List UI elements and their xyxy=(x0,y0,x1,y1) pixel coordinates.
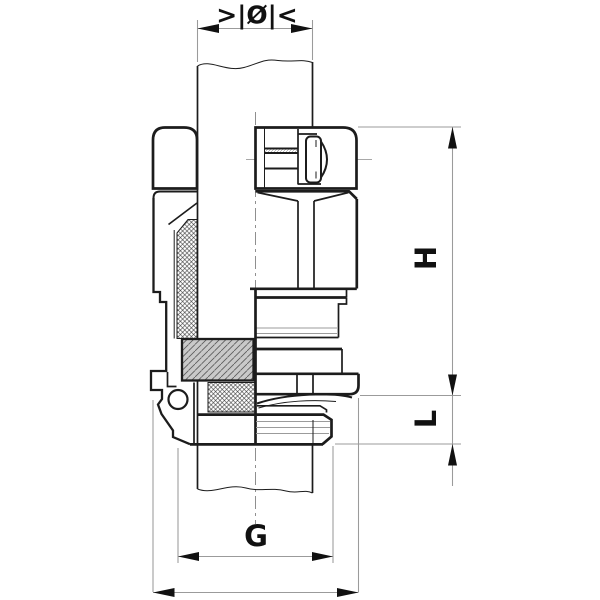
diameter-label: >|Ø|< xyxy=(216,1,297,30)
seals xyxy=(174,220,255,445)
thread-length-arrow xyxy=(448,444,457,466)
height-arrow-top xyxy=(448,127,457,149)
thread-size-arrow-left xyxy=(178,552,199,561)
drawing-canvas: >|Ø|< H L G xyxy=(0,0,600,600)
body-top-left xyxy=(154,192,198,199)
o-ring-section xyxy=(169,390,188,409)
neck-right-edge xyxy=(339,298,347,338)
height-arrow-bottom xyxy=(448,375,457,396)
locknut-flange xyxy=(256,374,359,394)
cap-left-section xyxy=(153,128,197,189)
cable-gland-section-drawing: >|Ø|< H L G xyxy=(0,0,600,600)
thread-size-label: G xyxy=(244,519,268,553)
dome-curve-inner xyxy=(259,401,337,408)
mounting-panel-section xyxy=(182,339,254,381)
cap-nut xyxy=(153,128,357,189)
flange-outline xyxy=(256,374,359,394)
hex-corner-edges xyxy=(298,201,314,289)
hex-chamfer-lines xyxy=(258,193,349,202)
dimension-thread-length: L xyxy=(335,410,461,466)
ring-groove xyxy=(257,406,327,413)
thread-crest-lines xyxy=(256,422,330,434)
neck-thin-lines xyxy=(256,328,337,334)
dimension-height: H xyxy=(358,127,461,486)
dimension-diameter: >|Ø|< xyxy=(198,1,313,63)
overall-arrow-right xyxy=(337,588,359,597)
flange-inner-step xyxy=(168,372,177,387)
overall-arrow-left xyxy=(153,588,175,597)
thread-size-arrow-right xyxy=(312,552,333,561)
dome-curve-outer xyxy=(257,394,352,403)
upper-seal-insert xyxy=(177,220,197,339)
stub-outline xyxy=(198,415,332,445)
thread-length-label: L xyxy=(409,410,443,428)
flange-hex-corners xyxy=(297,375,313,395)
cable-break-line-bottom xyxy=(198,487,313,493)
screw-head xyxy=(306,137,321,183)
height-label: H xyxy=(409,246,443,270)
cable-break-line-top xyxy=(198,60,313,69)
lower-seal-insert xyxy=(208,383,256,413)
